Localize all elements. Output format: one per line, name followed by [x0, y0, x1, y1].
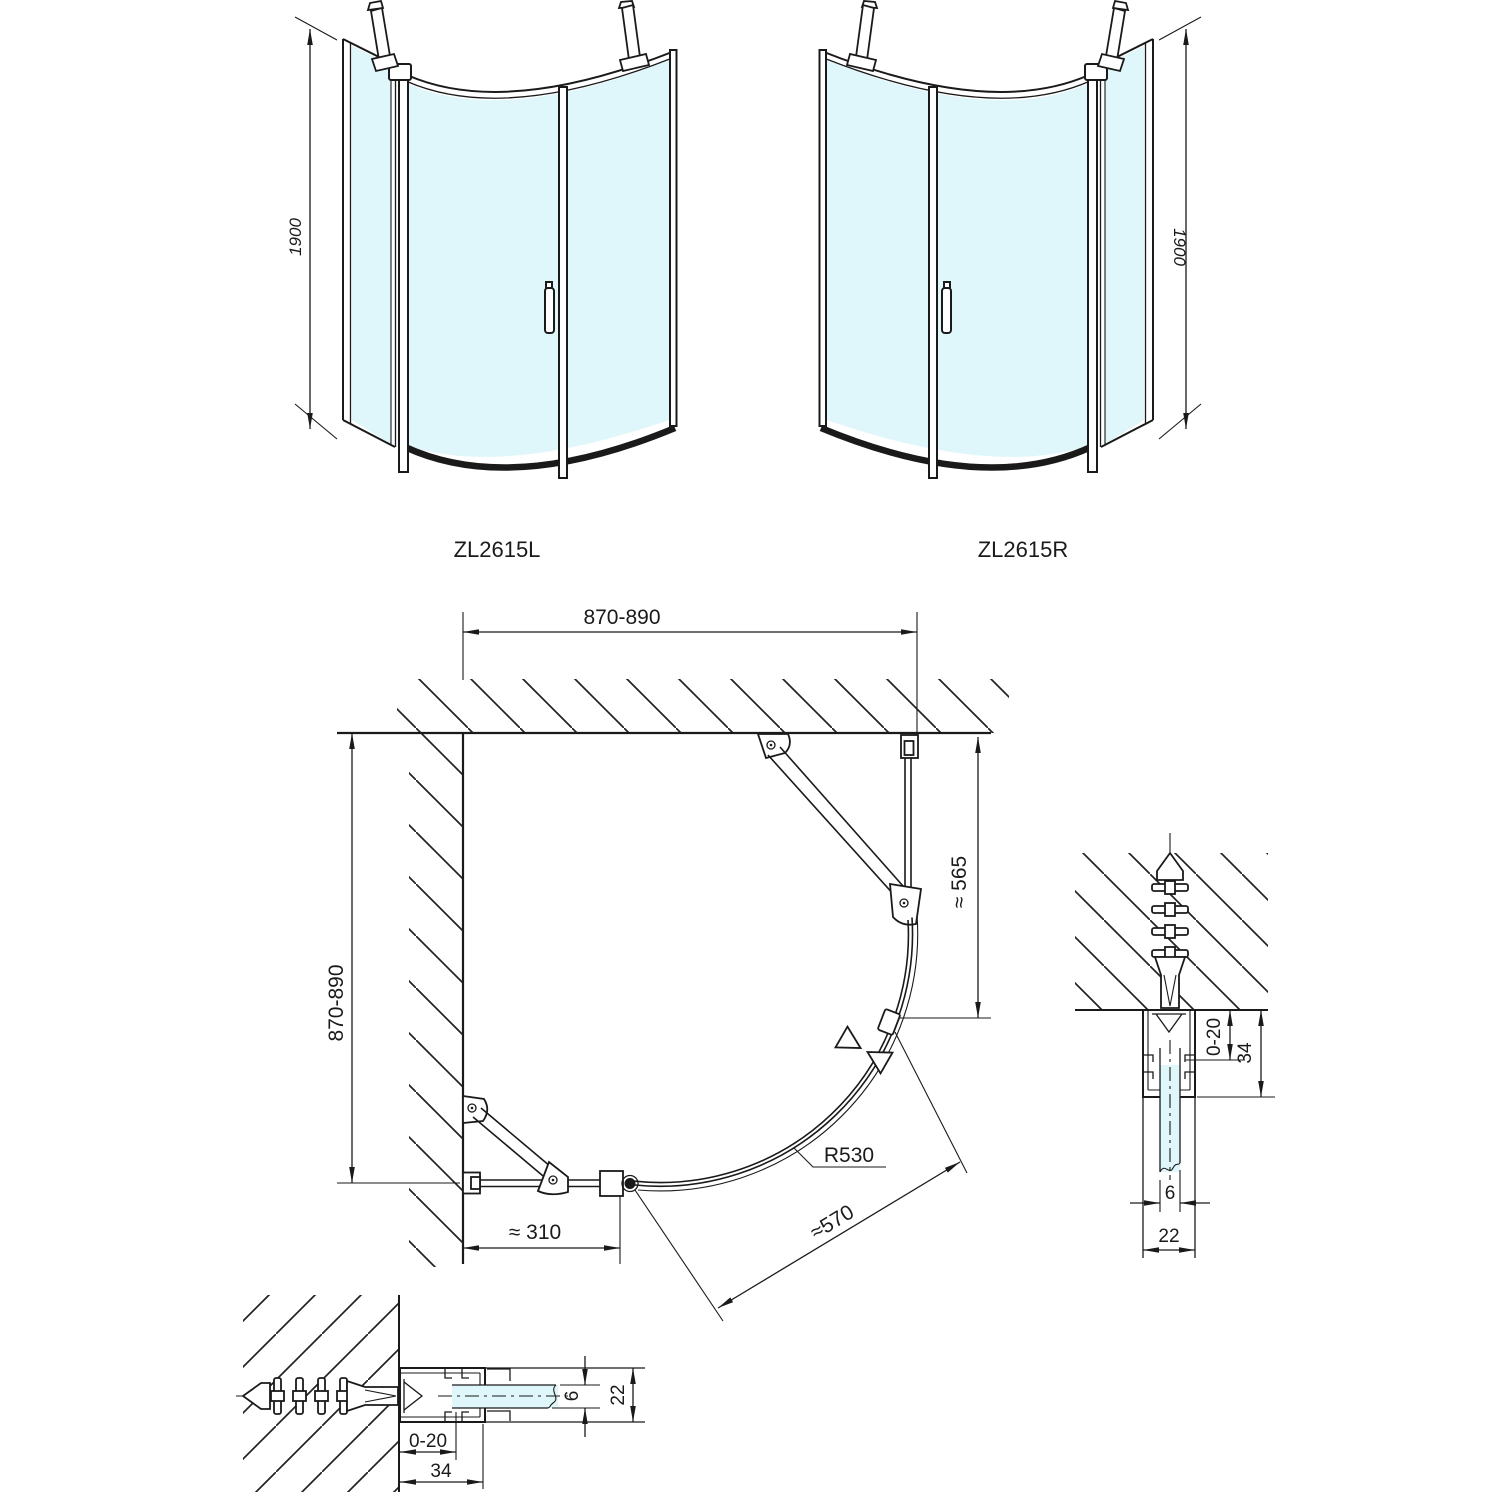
height-dimension-left: 1900 — [286, 218, 305, 256]
plan-support-brace-top — [758, 734, 921, 925]
svg-text:6: 6 — [1165, 1183, 1176, 1204]
shower-enclosure-drawing: 1900 1900 ZL2615L ZL2615R 870-890 870-89… — [0, 0, 1500, 1500]
svg-text:6: 6 — [562, 1391, 583, 1402]
front-view-left — [295, 1, 677, 478]
plan-side-fixed-dim: ≈ 565 — [893, 737, 991, 1018]
svg-text:34: 34 — [430, 1461, 452, 1482]
svg-text:22: 22 — [1158, 1226, 1179, 1247]
profile-width-dim: 22 — [608, 1368, 633, 1422]
svg-text:0-20: 0-20 — [1204, 1018, 1225, 1056]
plan-radius-dim: R530 — [794, 1144, 886, 1167]
svg-text:870-890: 870-890 — [325, 964, 348, 1041]
plan-door-pivot — [600, 1171, 638, 1196]
model-label-left: ZL2615L — [454, 537, 541, 562]
plan-bottom-panel — [478, 1180, 600, 1187]
svg-text:22: 22 — [608, 1384, 629, 1405]
model-label-right: ZL2615R — [978, 537, 1069, 562]
front-view-right — [820, 1, 1202, 478]
technical-drawing-page: 1900 1900 ZL2615L ZL2615R 870-890 870-89… — [0, 0, 1500, 1500]
plan-right-panel — [905, 757, 911, 889]
svg-text:≈ 565: ≈ 565 — [948, 856, 971, 908]
svg-text:≈ 310: ≈ 310 — [509, 1221, 561, 1244]
plan-entry-dim: ≈570 — [635, 1032, 967, 1321]
plan-top-wall-bracket — [901, 735, 918, 758]
plan-view: 870-890 870-890 ≈ 565 ≈ 310 ≈570 — [325, 606, 1009, 1321]
profile-width-dim: 22 — [1143, 1226, 1195, 1250]
wall-profile — [1143, 1010, 1195, 1258]
wall-hatch-left — [409, 733, 463, 1267]
plan-back-fixed-dim: ≈ 310 — [463, 1196, 620, 1264]
wall-profile-section-right: 0-20 34 6 22 — [1075, 833, 1275, 1258]
height-dimension-right: 1900 — [1170, 228, 1189, 266]
svg-text:≈570: ≈570 — [806, 1201, 858, 1245]
wall-profile-section-bottom: 0-20 34 6 22 — [236, 1295, 645, 1492]
svg-text:34: 34 — [1235, 1042, 1256, 1064]
plan-door-roller — [878, 1009, 901, 1035]
plan-left-wall-clamp — [463, 1173, 480, 1194]
svg-text:R530: R530 — [824, 1144, 874, 1167]
svg-text:870-890: 870-890 — [583, 606, 660, 629]
svg-text:0-20: 0-20 — [409, 1431, 447, 1452]
